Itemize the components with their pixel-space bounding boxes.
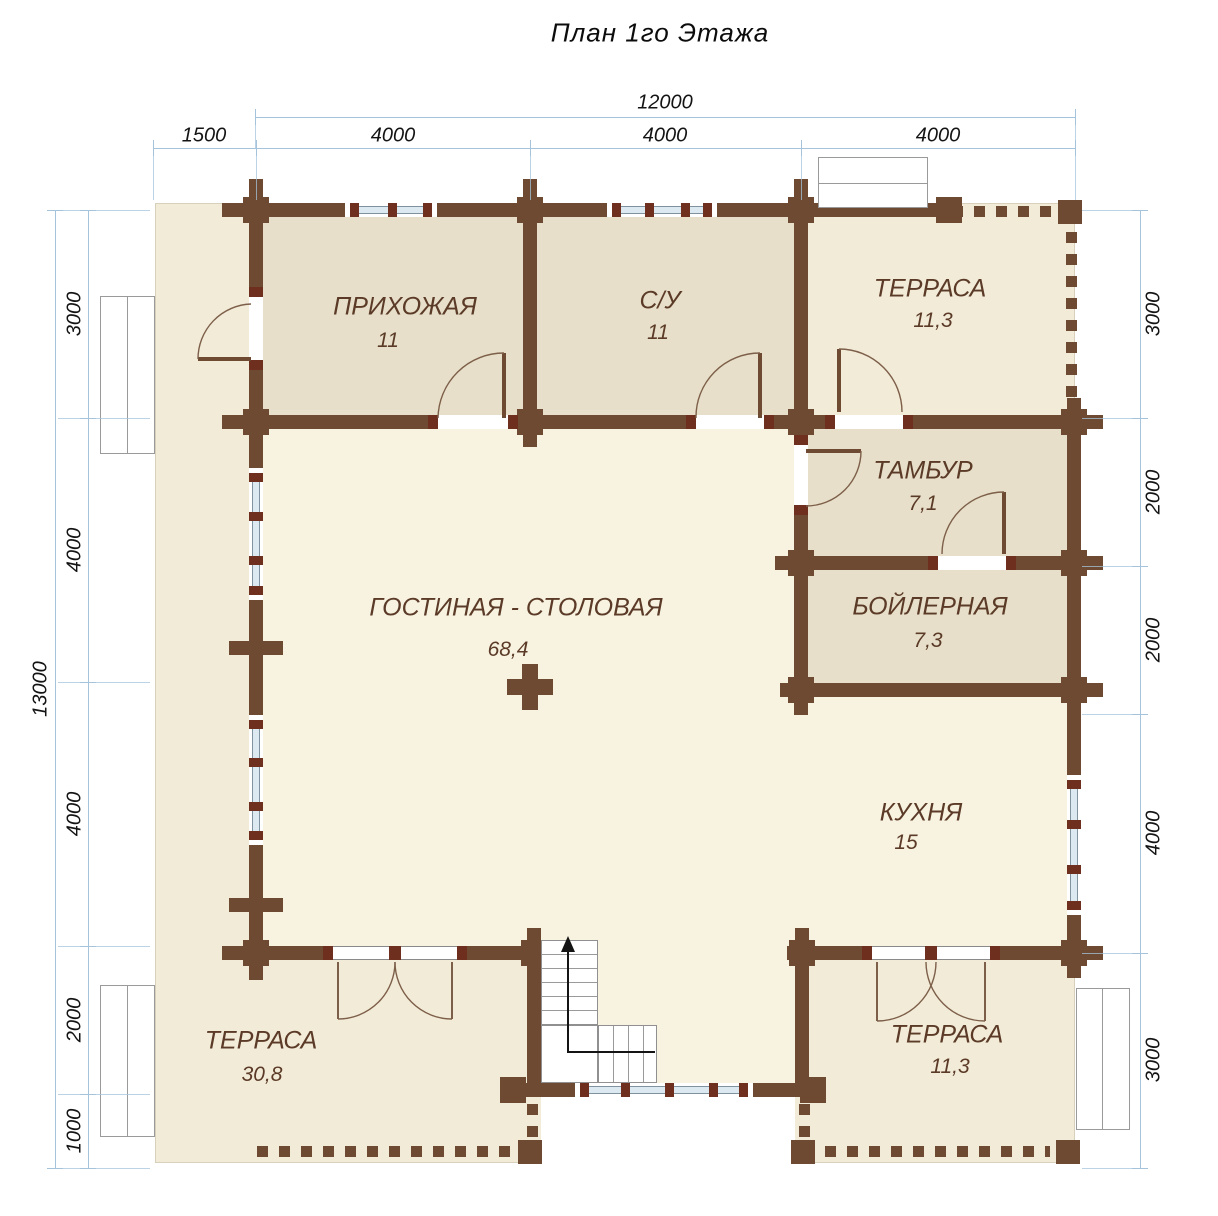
dim-top-seg-0: 1500 (182, 125, 227, 148)
room-label-bath-name: С/У (640, 287, 681, 316)
room-label-boiler-area: 7,3 (913, 629, 942, 653)
room-label-tambour-name: ТАМБУР (873, 457, 972, 486)
room-label-terrace-top-area: 11,3 (913, 309, 952, 333)
dim-right-seg-0: 3000 (1143, 292, 1166, 337)
room-label-kitchen-area: 15 (894, 831, 917, 855)
room-label-boiler-name: БОЙЛЕРНАЯ (852, 593, 1007, 622)
dim-right-seg-2: 2000 (1143, 618, 1166, 663)
dim-left-seg-1: 4000 (64, 528, 87, 573)
room-label-terrace-br-area: 11,3 (930, 1055, 969, 1079)
room-label-terrace-br-name: ТЕРРАСА (891, 1021, 1004, 1050)
dim-top-seg-2: 4000 (643, 125, 688, 148)
room-label-hall-name: ПРИХОЖАЯ (333, 293, 477, 322)
room-label-kitchen-name: КУХНЯ (880, 799, 962, 828)
room-label-bath-area: 11 (647, 321, 669, 345)
dim-top-seg-3: 4000 (916, 125, 961, 148)
dim-left-seg-0: 3000 (64, 292, 87, 337)
room-labels-layer: 1200015004000400040001300030004000400020… (0, 0, 1218, 1216)
dim-right-seg-3: 4000 (1143, 811, 1166, 856)
floor-plan-sheet: План 1го Этажа 1200015004000400040001300… (0, 0, 1218, 1216)
dim-left-seg-2: 4000 (64, 792, 87, 837)
dim-left-total: 13000 (30, 661, 53, 717)
room-label-tambour-area: 7,1 (908, 492, 937, 516)
dim-top-seg-1: 4000 (371, 125, 416, 148)
dim-right-seg-4: 3000 (1143, 1038, 1166, 1083)
room-label-terrace-bl-name: ТЕРРАСА (205, 1027, 318, 1056)
dim-top-total: 12000 (637, 92, 693, 115)
room-label-terrace-bl-area: 30,8 (242, 1063, 283, 1087)
dim-left-seg-3: 2000 (64, 998, 87, 1043)
dim-left-seg-4: 1000 (64, 1109, 87, 1154)
room-label-living-name: ГОСТИНАЯ - СТОЛОВАЯ (369, 594, 662, 623)
dim-right-seg-1: 2000 (1143, 470, 1166, 515)
room-label-terrace-top-name: ТЕРРАСА (874, 275, 987, 304)
room-label-living-area: 68,4 (488, 638, 529, 662)
room-label-hall-area: 11 (377, 329, 399, 353)
